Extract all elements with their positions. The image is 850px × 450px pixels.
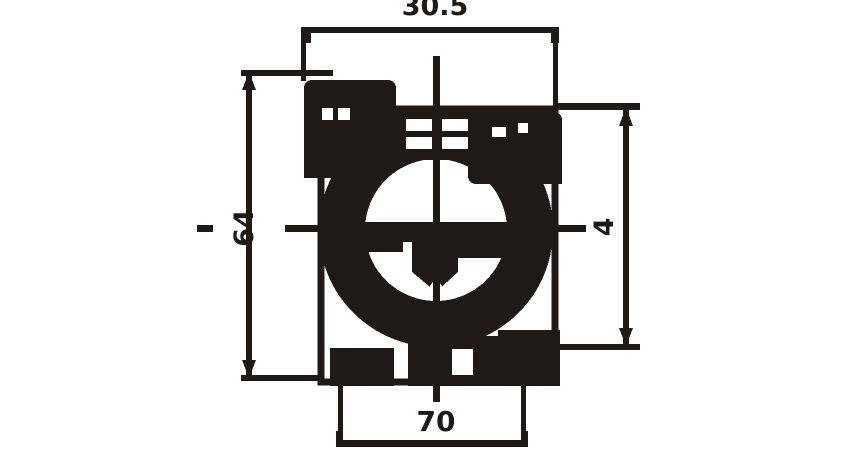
terminal-slot-icon: [442, 119, 468, 131]
centerline-dash-left: [197, 225, 213, 232]
extension-line: [558, 103, 640, 110]
extension-line: [521, 384, 526, 442]
arrowhead-icon: [619, 328, 633, 346]
dimension-line: [623, 105, 629, 350]
dimension-line: [336, 440, 528, 447]
screw-slot-icon: [338, 108, 350, 120]
terminal-slot-icon: [406, 119, 432, 131]
dimension-label-right: 4: [589, 218, 620, 237]
extension-line: [241, 70, 333, 76]
extension-line: [553, 27, 558, 107]
screw-slot-icon: [518, 123, 528, 133]
tab-bottom-right: [498, 330, 560, 386]
terminal-bottom-slot: [452, 349, 473, 375]
hub-step-right: [458, 242, 513, 258]
technical-drawing-canvas: 30.5 64 4 70: [0, 0, 850, 450]
extension-line: [241, 375, 318, 381]
extension-line: [338, 384, 343, 442]
dimension-label-top: 30.5: [402, 0, 469, 22]
dimension-label-left: 64: [229, 209, 260, 247]
screw-slot-icon: [492, 127, 506, 137]
dimension-drawing: 30.5 64 4 70: [0, 0, 850, 450]
dimension-line: [303, 27, 559, 33]
bottom-dimension: 70: [336, 384, 528, 447]
centerline-horizontal: [285, 225, 586, 232]
terminal-slot-icon: [442, 137, 468, 149]
screw-slot-icon: [322, 108, 333, 120]
tab-bottom-left: [330, 348, 394, 386]
dimension-label-bottom: 70: [417, 405, 456, 438]
hub-step-left: [365, 242, 403, 252]
terminal-slot-icon: [406, 137, 432, 149]
